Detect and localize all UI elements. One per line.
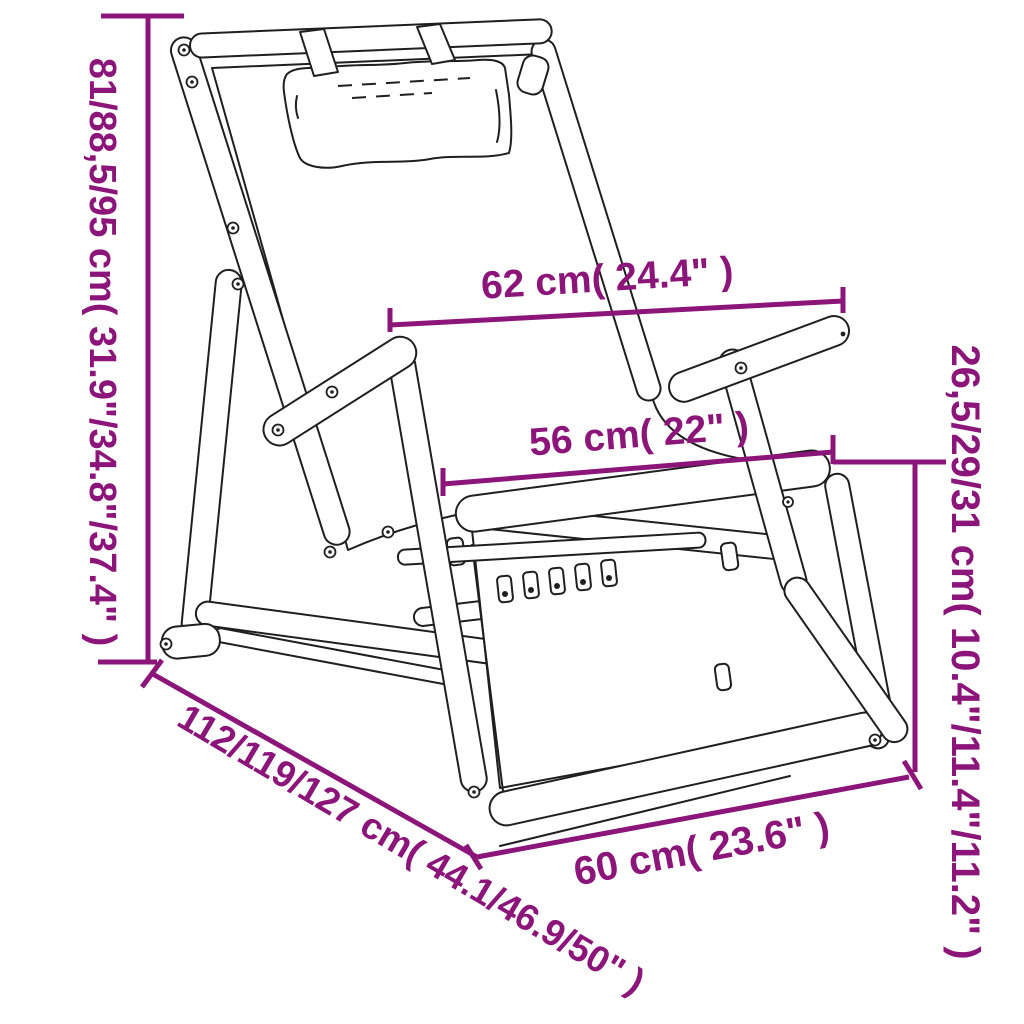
backrest-top-crossbar xyxy=(189,19,552,58)
seat-fabric-clip xyxy=(714,663,731,691)
deck-chair-dimension-diagram: 81/88,5/95 cm( 31.9"/34.8"/37.4" ) 62 cm… xyxy=(0,0,1024,1024)
dimension-label-seat-height: 26,5/29/31 cm( 10.4"/11.4"/11.2" ) xyxy=(943,344,987,959)
dimension-label-total-height: 81/88,5/95 cm( 31.9"/34.8"/37.4" ) xyxy=(81,58,123,647)
seat-bracket-hinge xyxy=(720,542,739,571)
right-armrest xyxy=(665,312,854,406)
depth-dimension-line xyxy=(142,660,477,857)
rear-left-leg xyxy=(181,269,243,638)
